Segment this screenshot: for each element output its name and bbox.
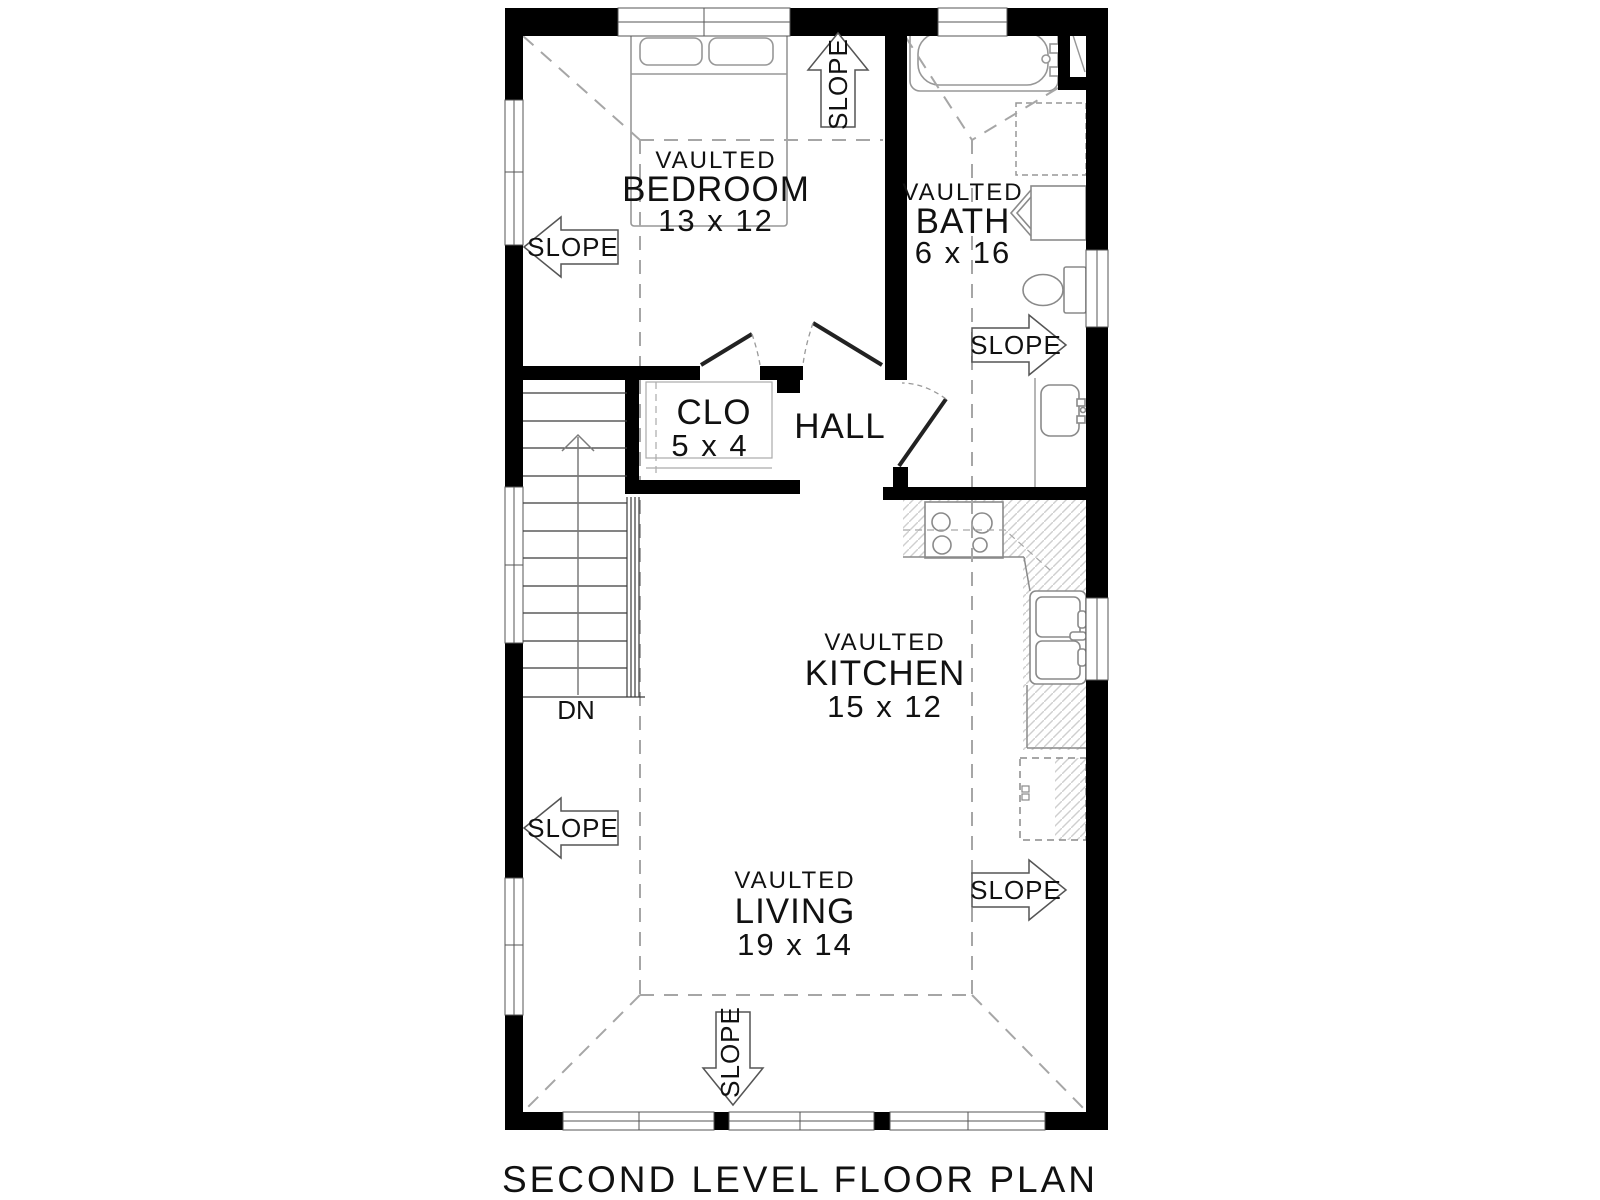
window-left-bedroom bbox=[505, 100, 523, 245]
toilet-bowl bbox=[1023, 275, 1063, 306]
slope-label: SLOPE bbox=[823, 38, 853, 130]
slope-label: SLOPE bbox=[527, 813, 619, 843]
window-left-stairs bbox=[505, 487, 523, 643]
sink-handle-top bbox=[1078, 611, 1086, 628]
burner-icon bbox=[932, 513, 950, 531]
room-label-closet: CLO 5 x 4 bbox=[671, 393, 751, 463]
bath-sink-handle-top bbox=[1077, 399, 1085, 406]
window-bottom-right bbox=[890, 1112, 1045, 1130]
room-label-kitchen: VAULTED KITCHEN 15 x 12 bbox=[805, 629, 966, 724]
window-right-kitchen bbox=[1086, 598, 1108, 680]
window-left-living bbox=[505, 878, 523, 1015]
tub-faucet-icon bbox=[1042, 55, 1050, 63]
wall-bedroom-bottom-left bbox=[523, 366, 700, 380]
kitchen-name: KITCHEN bbox=[805, 654, 966, 693]
bathtub bbox=[910, 27, 1059, 91]
window-right-bath bbox=[1086, 250, 1108, 327]
burner-icon bbox=[933, 536, 951, 554]
window-top-bath bbox=[938, 8, 1007, 36]
bed-pillow-left bbox=[640, 38, 702, 65]
wall-kitchen-top bbox=[883, 487, 1086, 500]
drawing-title: SECOND LEVEL FLOOR PLAN bbox=[502, 1159, 1098, 1200]
floor-plan-drawing: SLOPE SLOPE SLOPE SLOPE SLOPE SLOPE VAUL… bbox=[0, 0, 1600, 1200]
floor-plan-page: SLOPE SLOPE SLOPE SLOPE SLOPE SLOPE VAUL… bbox=[0, 0, 1600, 1200]
wall-bath-door-stub bbox=[893, 467, 908, 489]
toilet-tank bbox=[1064, 267, 1086, 313]
sink-basin-bottom bbox=[1036, 641, 1080, 679]
wall-exterior-top bbox=[505, 8, 1108, 36]
bath-sink-handle-bottom bbox=[1077, 416, 1085, 423]
bath-sink bbox=[1041, 385, 1086, 436]
wall-closet-bottom bbox=[625, 480, 800, 494]
tub-handle-bottom bbox=[1050, 67, 1059, 76]
room-label-bath: VAULTED BATH 6 x 16 bbox=[902, 179, 1023, 270]
room-label-living: VAULTED LIVING 19 x 14 bbox=[734, 867, 855, 962]
kitchen-sink bbox=[1030, 591, 1086, 684]
kitchen-tag: VAULTED bbox=[824, 629, 945, 656]
wall-closet-right-top bbox=[777, 366, 800, 393]
window-top-bedroom bbox=[618, 8, 790, 36]
hall-name: HALL bbox=[794, 407, 886, 446]
sink-basin-top bbox=[1036, 597, 1080, 637]
living-name: LIVING bbox=[735, 892, 856, 931]
slope-label: SLOPE bbox=[715, 1006, 745, 1098]
slope-label: SLOPE bbox=[527, 232, 619, 262]
slope-label: SLOPE bbox=[970, 330, 1062, 360]
wall-linen-niche-bottom bbox=[1058, 77, 1086, 90]
bath-size: 6 x 16 bbox=[915, 235, 1011, 270]
kitchen-size: 15 x 12 bbox=[827, 689, 943, 724]
sink-spout bbox=[1070, 632, 1086, 640]
wall-closet-left bbox=[625, 380, 639, 494]
bedroom-size: 13 x 12 bbox=[658, 203, 774, 238]
living-size: 19 x 14 bbox=[737, 927, 853, 962]
bed-pillow-right bbox=[709, 38, 773, 65]
wall-exterior-right bbox=[1086, 8, 1108, 1130]
sink-handle-bottom bbox=[1078, 649, 1086, 666]
stairs-dn-label: DN bbox=[557, 695, 595, 725]
window-bottom-left bbox=[563, 1112, 714, 1130]
slope-label: SLOPE bbox=[970, 875, 1062, 905]
tub-handle-top bbox=[1050, 44, 1059, 53]
bath-sink-spout bbox=[1081, 408, 1086, 413]
living-tag: VAULTED bbox=[734, 867, 855, 894]
closet-size: 5 x 4 bbox=[671, 428, 748, 463]
window-bottom-center bbox=[729, 1112, 874, 1130]
closet-name: CLO bbox=[677, 393, 752, 432]
burner-icon bbox=[973, 538, 987, 552]
